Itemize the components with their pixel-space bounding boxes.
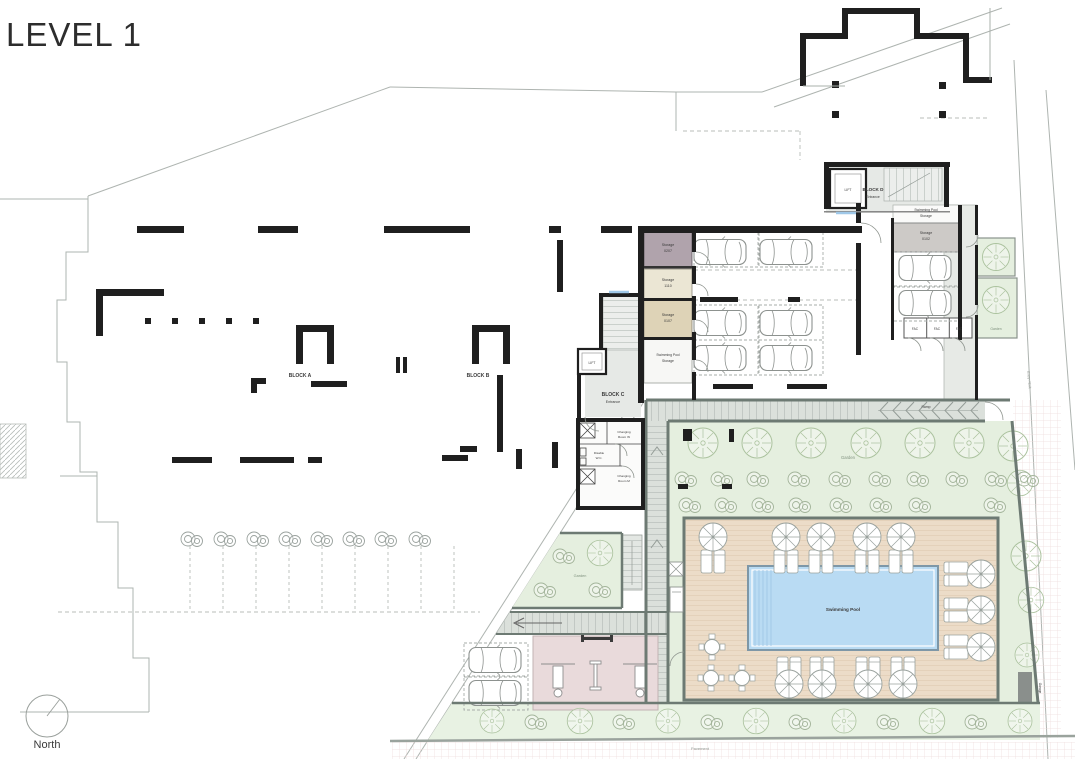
tree-icon: [480, 709, 504, 733]
tree-icon: [567, 708, 593, 734]
umbrella-icon: [772, 523, 800, 551]
tree-icon: [832, 709, 856, 733]
block-c-entrance-label: Entrance: [606, 400, 620, 404]
car-icon: [760, 343, 812, 374]
bush-icon: [279, 532, 301, 547]
car-icon: [899, 288, 951, 319]
car-icon: [760, 308, 812, 339]
street-planting-strip: [428, 703, 1040, 740]
umbrella-icon: [887, 523, 915, 551]
bush-icon: [181, 532, 203, 547]
lounger-icon: [714, 550, 725, 573]
lounger-icon: [855, 550, 866, 573]
storage-d-number: 0102: [922, 237, 930, 241]
lounger-icon: [944, 598, 968, 609]
tree-icon: [983, 287, 1010, 314]
car-icon: [760, 237, 812, 268]
umbrella-icon: [967, 560, 995, 588]
upper-block-outline: [803, 8, 992, 86]
umbrella-icon: [853, 523, 881, 551]
block-a-label: BLOCK A: [289, 373, 312, 379]
umbrella-icon: [854, 670, 882, 698]
tree-icon: [587, 540, 613, 566]
block-d-label: BLOCK D: [863, 187, 885, 192]
garage-block: [1018, 672, 1032, 704]
lounger-icon: [787, 550, 798, 573]
pavement-label: Pavement: [691, 746, 710, 751]
left-hatch-area: [0, 424, 26, 478]
north-label: North: [34, 739, 61, 751]
outdoor-parking-dividers: [190, 546, 454, 612]
lounger-icon: [701, 550, 712, 573]
floor-plan-canvas: LEVEL 1: [0, 0, 1075, 759]
pool-storage-d-line2: Storage: [920, 214, 932, 218]
tree-icon: [656, 709, 680, 733]
pool-storage-d-line1: Swimming Pool: [914, 208, 938, 212]
garden-side-label: Garden: [990, 327, 1001, 331]
tree-icon: [796, 428, 826, 458]
swimming-pool-label: Swimming Pool: [826, 607, 860, 612]
fac-3-label: FAC: [956, 327, 963, 331]
tree-icon: [1018, 587, 1044, 613]
tree-icon: [983, 244, 1010, 271]
bush-icon: [409, 532, 431, 547]
umbrella-icon: [967, 633, 995, 661]
umbrella-icon: [889, 670, 917, 698]
lounger-icon: [889, 550, 900, 573]
lounger-icon: [944, 611, 968, 622]
umbrella-icon: [699, 523, 727, 551]
lounger-icon: [944, 648, 968, 659]
disable-wc-line1: Disable: [594, 451, 605, 455]
fac-1-label: FAC: [912, 327, 919, 331]
storage-1-name: Storage: [662, 243, 675, 247]
umbrella-icon: [775, 670, 803, 698]
lounger-icon: [944, 575, 968, 586]
pool-equipment: [670, 587, 683, 612]
car-icon: [694, 308, 746, 339]
garden-main-label: Garden: [841, 455, 856, 460]
garden-terrace-label: Garden: [574, 574, 587, 578]
changing-m-line1: Changing: [617, 474, 631, 478]
lounger-icon: [944, 562, 968, 573]
disable-wc-line2: W.C.: [596, 456, 603, 460]
car-icon: [694, 237, 746, 268]
changing-w-line1: Changing: [617, 430, 631, 434]
storage-2-name: Storage: [662, 278, 675, 282]
pool-storage-c-line2: Storage: [662, 359, 674, 363]
bush-icon: [214, 532, 236, 547]
north-compass: [26, 695, 68, 737]
lounger-icon: [868, 550, 879, 573]
lounger-icon: [774, 550, 785, 573]
bush-icon: [375, 532, 397, 547]
block-b-label: BLOCK B: [467, 373, 490, 379]
tree-icon: [905, 428, 935, 458]
lounger-icon: [822, 550, 833, 573]
bush-icon: [311, 532, 333, 547]
tree-icon: [742, 428, 772, 458]
lift-d-label: LIFT: [845, 188, 852, 192]
car-icon: [469, 645, 521, 676]
tree-icon: [954, 428, 984, 458]
umbrella-icon: [967, 596, 995, 624]
storage-2-number: 1110: [664, 284, 671, 288]
fac-2-label: FAC: [934, 327, 941, 331]
pavement-grid: [392, 742, 1075, 759]
lift-c-label: LIFT: [589, 361, 596, 365]
pool-storage-c-line1: Swimming Pool: [656, 353, 680, 357]
tree-icon: [919, 708, 945, 734]
bush-icon: [343, 532, 365, 547]
floor-plan-drawing: BLOCK A BLOCK B BLOCK C Entrance BLOCK D…: [0, 0, 1075, 759]
car-icon: [899, 253, 951, 284]
lounger-icon: [809, 550, 820, 573]
tree-icon: [688, 428, 718, 458]
tree-icon: [1008, 709, 1032, 733]
umbrella-icon: [807, 523, 835, 551]
tree-icon: [743, 708, 769, 734]
entry-exit-label: Entry / Exit: [1026, 371, 1032, 389]
changing-m-line2: Room M: [618, 479, 630, 483]
changing-w-line2: Room W: [618, 435, 630, 439]
tree-icon: [851, 428, 881, 458]
lounger-icon: [902, 550, 913, 573]
ramp-label: Ramp: [921, 405, 930, 409]
storage-3-name: Storage: [662, 313, 675, 317]
block-d-entrance-label: Entrance: [866, 195, 880, 199]
garage-label: Garage: [1038, 683, 1042, 694]
umbrella-icon: [808, 670, 836, 698]
car-icon: [694, 343, 746, 374]
block-c-label: BLOCK C: [602, 392, 625, 398]
storage-3-number: 0107: [664, 319, 672, 323]
storage-1-number: 0207: [664, 249, 672, 253]
lounger-icon: [944, 635, 968, 646]
bush-icon: [247, 532, 269, 547]
storage-d-name: Storage: [920, 231, 933, 235]
